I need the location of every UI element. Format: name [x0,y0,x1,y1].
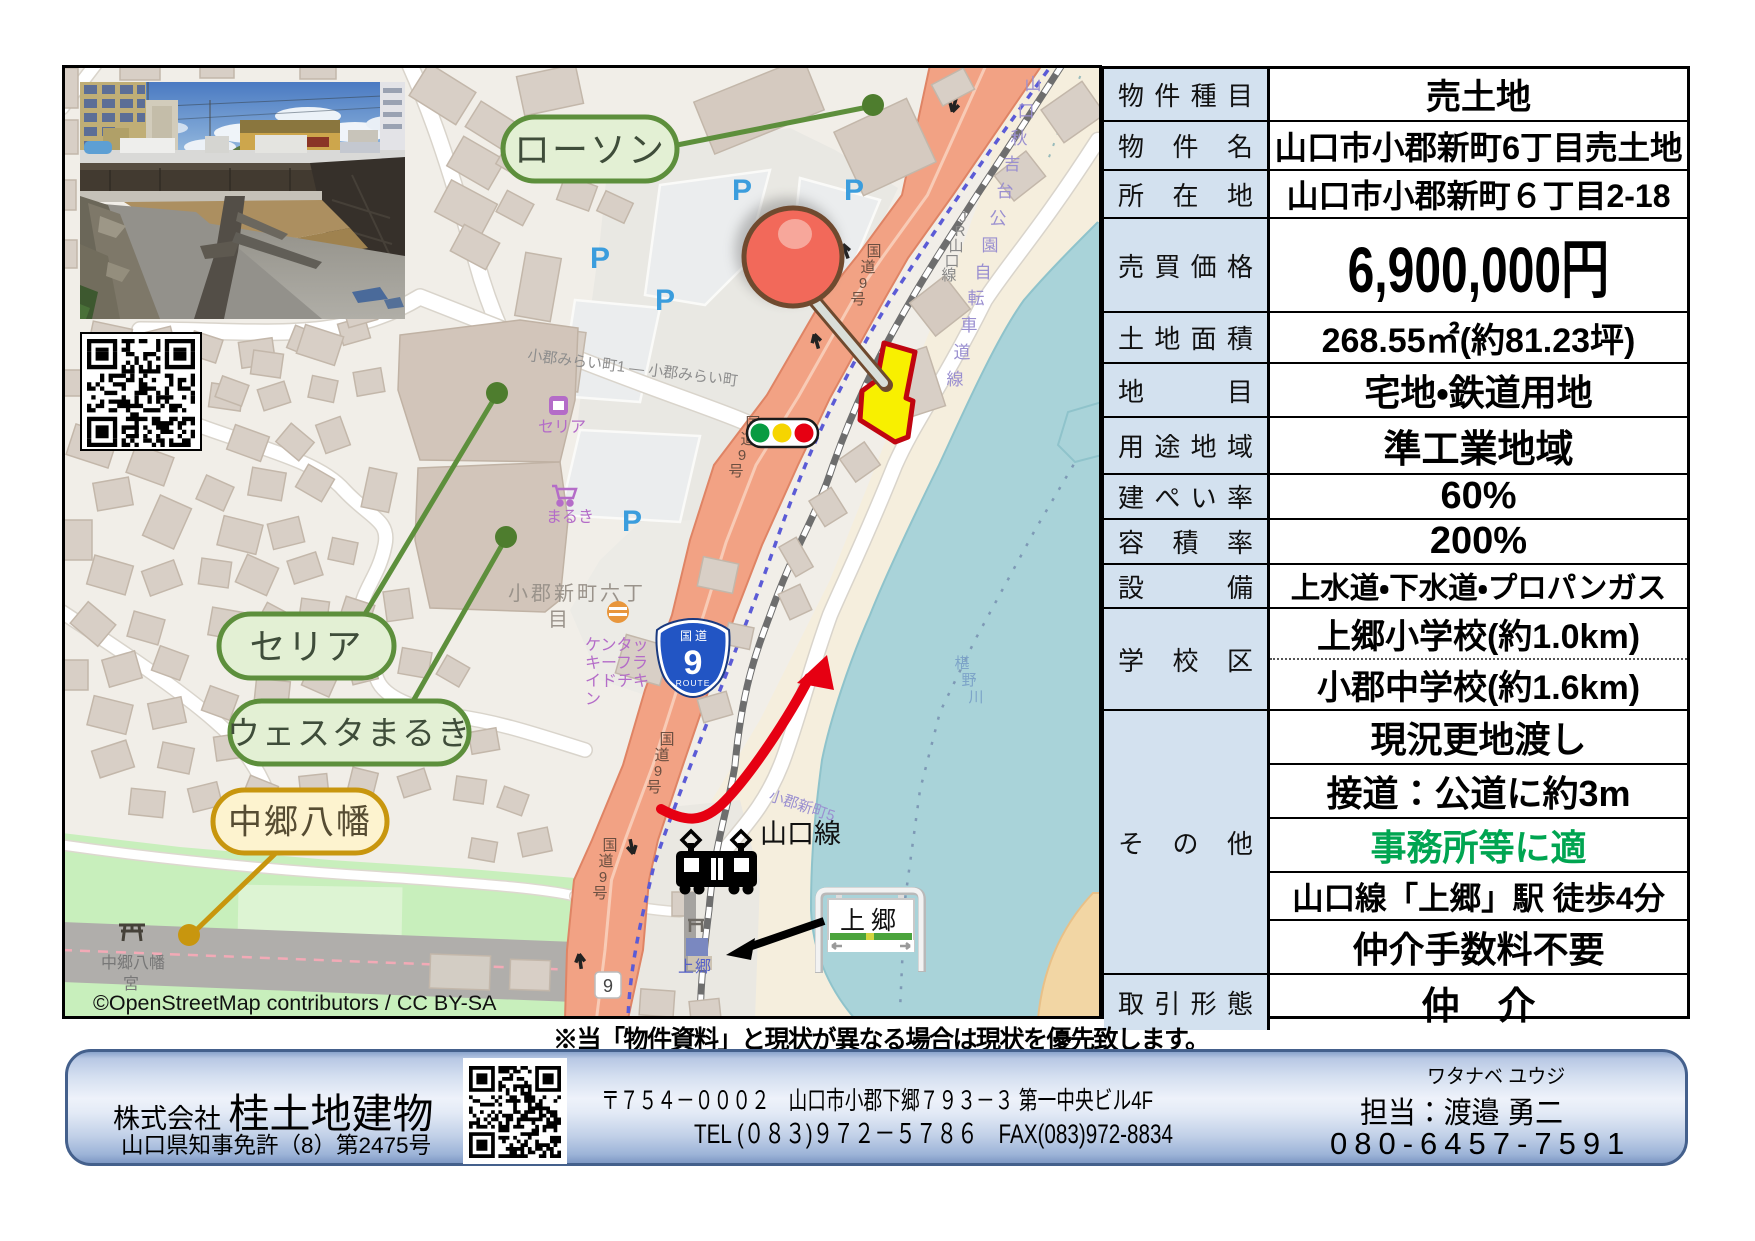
svg-text:国: 国 [680,629,692,643]
svg-text:山口線: 山口線 [760,819,841,849]
svg-text:川: 川 [968,689,983,706]
svg-text:道: 道 [695,629,707,643]
svg-text:園: 園 [982,236,999,255]
svg-text:上郷: 上郷 [840,907,902,935]
svg-text:線: 線 [947,370,964,389]
svg-text:9: 9 [654,763,662,780]
svg-text:P: P [622,505,642,538]
svg-text:自: 自 [975,263,992,282]
svg-text:P: P [590,242,610,275]
svg-text:国: 国 [659,731,674,748]
svg-text:号: 号 [850,291,865,308]
svg-text:号: 号 [646,779,661,796]
svg-text:道: 道 [598,853,613,870]
svg-text:口: 口 [1018,102,1035,121]
svg-text:道: 道 [860,259,875,276]
svg-text:車: 車 [961,316,978,335]
svg-text:9: 9 [684,644,703,682]
svg-text:イドチキ: イドチキ [585,673,649,690]
svg-text:公: 公 [990,209,1007,228]
svg-text:号: 号 [728,463,743,480]
svg-text:国: 国 [602,837,617,854]
svg-text:9: 9 [738,447,746,464]
svg-text:セリア: セリア [249,626,363,667]
svg-text:吉: 吉 [1004,155,1021,174]
svg-text:ケンタッ: ケンタッ [585,636,649,654]
svg-text:野: 野 [961,672,976,689]
svg-text:9: 9 [599,869,607,886]
svg-text:©OpenStreetMap contributors /: ©OpenStreetMap contributors / CC BY-SA [93,991,497,1015]
svg-text:P: P [655,284,675,317]
svg-text:国: 国 [866,243,881,260]
svg-text:道: 道 [954,343,971,362]
svg-text:中郷八幡: 中郷八幡 [228,804,372,842]
svg-text:キーフラ: キーフラ [585,655,648,672]
svg-text:P: P [844,174,864,207]
svg-text:台: 台 [997,182,1014,201]
svg-text:秋: 秋 [1011,129,1028,148]
svg-text:9: 9 [859,275,867,292]
svg-text:線: 線 [941,267,956,284]
svg-text:小郡新町六丁: 小郡新町六丁 [508,582,646,605]
svg-text:転: 転 [968,289,985,308]
svg-text:号: 号 [592,885,607,902]
svg-text:椹: 椹 [954,655,969,672]
svg-text:ウェスタまるき: ウェスタまるき [227,714,472,751]
svg-text:まるき: まるき [546,508,594,526]
svg-text:9: 9 [603,976,613,996]
svg-text:中郷八幡: 中郷八幡 [101,954,165,972]
svg-text:山: 山 [1025,75,1042,94]
svg-text:目: 目 [548,609,568,631]
svg-text:ローソン: ローソン [514,129,666,170]
svg-text:ROUTE: ROUTE [676,678,711,688]
svg-text:セリア: セリア [538,419,586,436]
svg-text:上郷: 上郷 [678,958,712,976]
svg-text:P: P [732,174,752,207]
svg-text:道: 道 [654,747,669,764]
svg-text:ン: ン [585,691,601,708]
